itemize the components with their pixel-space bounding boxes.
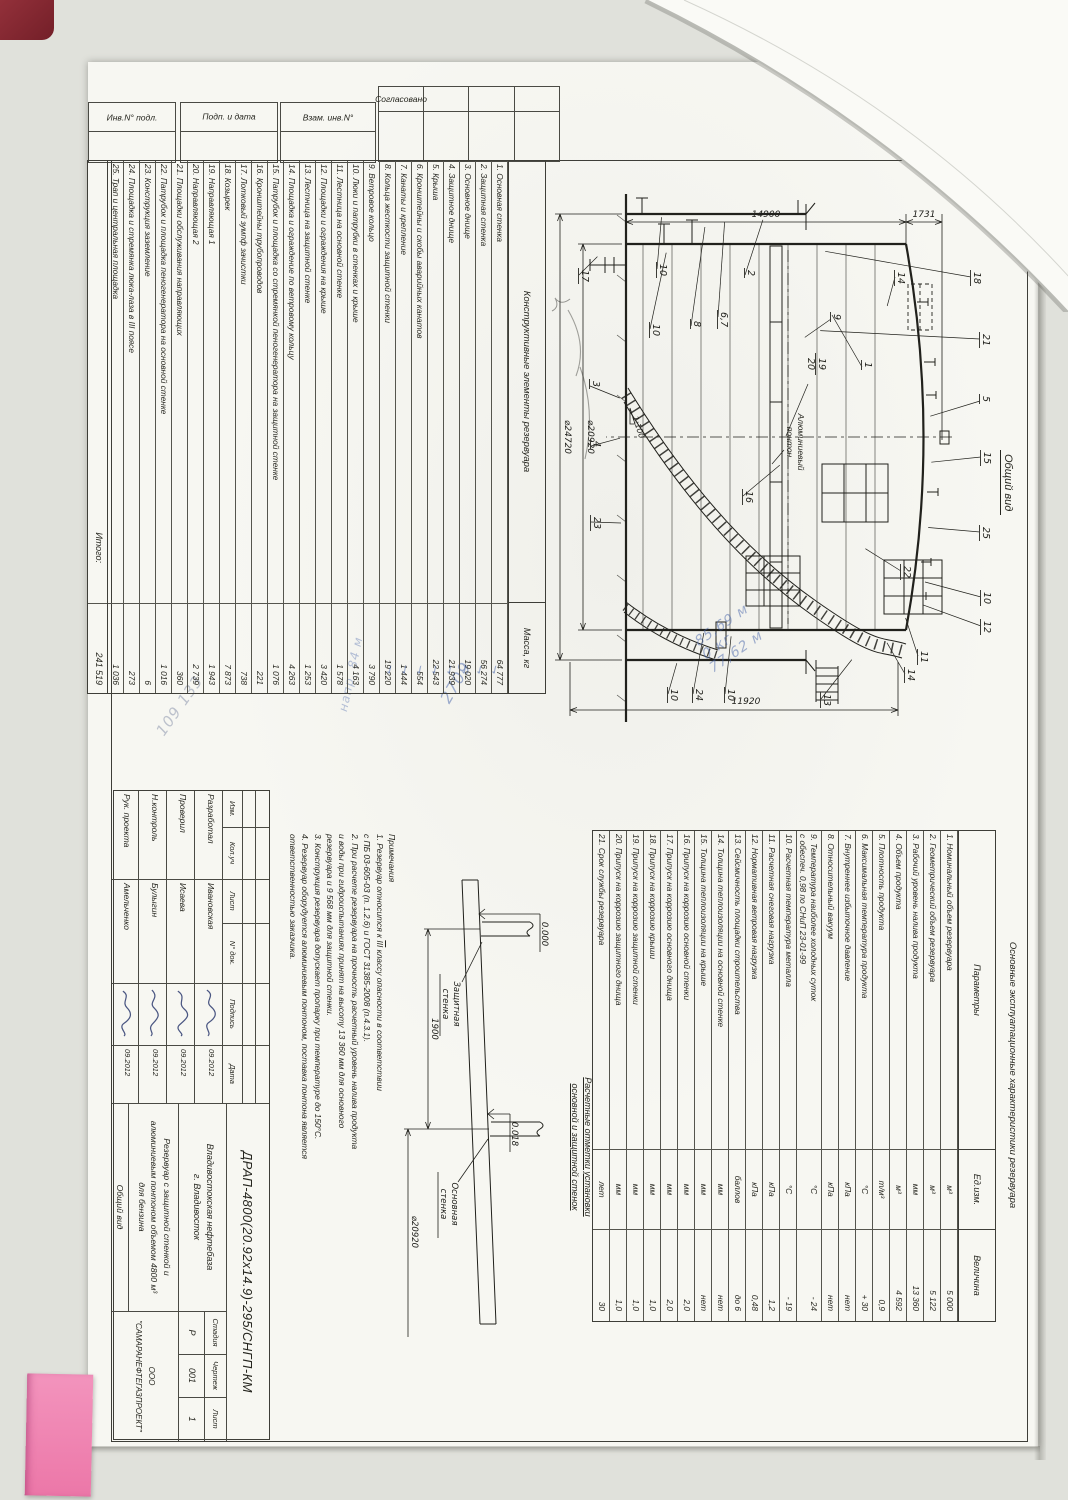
- parameter-value: + 30: [856, 1229, 872, 1321]
- table-row: 6. Максимальная температура продукта °С …: [856, 831, 873, 1321]
- parameter-unit: м³: [941, 1149, 957, 1229]
- staff-date: 09.2012: [123, 1049, 132, 1076]
- title-block: Изм. Кол.уч Лист N° док. Подпись Дата Ра…: [113, 790, 270, 1440]
- drawing-subject: Резервуар с защитной стенкой и алюминиев…: [129, 1103, 179, 1311]
- table-row: 6. Кронштейны и скобы аварийных канатов …: [412, 161, 428, 693]
- table-row: 23. Конструкция заземление 6: [140, 161, 156, 693]
- inv-label: Инв.N° подл.: [107, 112, 158, 122]
- parameter-value: 2,0: [678, 1229, 694, 1321]
- parameter-unit: мм: [610, 1149, 626, 1229]
- object-location: Владивостокская нефтебазаг. Владивосток: [179, 1103, 227, 1311]
- parameter-unit: мм: [712, 1149, 728, 1229]
- note-line: резервуара и 9 568 мм для защитной стенк…: [324, 834, 336, 1350]
- table-row: 13. Лестница на защитной стенке 1 253: [300, 161, 316, 693]
- table-row: 14. Толщина теплоизоляции на основной ст…: [712, 831, 729, 1321]
- element-mass: 56 274: [476, 603, 491, 693]
- parameter-name: 2. Геометрический объем резервуара: [924, 831, 940, 1149]
- drawing-no-value: 001: [179, 1354, 205, 1397]
- element-name: 16. Кронштейны трубопроводов: [252, 161, 267, 603]
- parameter-name: 1. Номинальный объем резервуара: [941, 831, 957, 1149]
- parameter-name: 4. Объем продукта: [890, 831, 906, 1149]
- col-podpis: Подпись: [223, 983, 243, 1045]
- notes-header: Примечания: [386, 834, 398, 1350]
- signature: [117, 987, 135, 1039]
- sketch-title: Расчетные отметки установки основной и з…: [568, 982, 594, 1312]
- col-ndok: N° док.: [223, 923, 243, 983]
- parameter-value: нет: [712, 1229, 728, 1321]
- element-mass: 64 777: [492, 603, 507, 693]
- parameter-name: 21. Срок службы резервуара: [593, 831, 609, 1149]
- design-company: ООО "САМАРАНЕФТЕГАЗПРОЕКТ": [112, 1311, 179, 1441]
- table-row: 16. Кронштейны трубопроводов 221: [252, 161, 268, 693]
- table-row: 17. Припуск на коррозию основного днища …: [661, 831, 678, 1321]
- note-line: 2. При расчете резервуара на прочность р…: [348, 834, 360, 1350]
- table-row: 15. Патрубок и площадка со стремянкой пе…: [268, 161, 284, 693]
- parameter-unit: °С: [856, 1149, 872, 1229]
- element-mass: 1 253: [300, 603, 315, 693]
- view-name-cell: Общий вид: [112, 1103, 129, 1311]
- element-mass: 273: [124, 603, 139, 693]
- element-mass: 1 943: [204, 603, 219, 693]
- inv-podl-strip: Инв.N° подл.: [88, 102, 176, 163]
- parameter-unit: мм: [678, 1149, 694, 1229]
- table-row: 12. Площадки и ограждения на крыше 3 420: [316, 161, 332, 693]
- parameter-value: нет: [839, 1229, 855, 1321]
- parameter-unit: кПа: [822, 1149, 838, 1229]
- staff-role: Разработал: [206, 794, 216, 844]
- table-row: 2. Защитная стенка 56 274: [476, 161, 492, 693]
- podp-label: Подп. и дата: [202, 112, 255, 122]
- total-label: Итого:: [88, 161, 107, 603]
- page-edge-shadow-bottom: [80, 1446, 1040, 1453]
- staff-role: Рук. проекта: [122, 794, 132, 847]
- staff-name: Ивановская: [206, 883, 216, 929]
- sheet-label: Лист: [205, 1397, 227, 1441]
- callout-25: 25: [979, 525, 991, 541]
- parameter-value: 30: [593, 1229, 609, 1321]
- callout-22: 22: [900, 564, 912, 580]
- callout-14: 14: [904, 667, 916, 683]
- callout-16: 16: [742, 489, 754, 505]
- table-row: 7. Внутреннее избыточное давление кПа не…: [839, 831, 856, 1321]
- staff-name: Амельченко: [122, 883, 132, 930]
- parameter-unit: м³: [890, 1149, 906, 1229]
- table-row: 14. Площадка и ограждение по ветровому к…: [284, 161, 300, 693]
- parameter-name: 13. Сейсмичность площадки строительства: [729, 831, 745, 1149]
- parameter-value: 0,48: [746, 1229, 762, 1321]
- parameter-name: 8. Относительный вакуум: [822, 831, 838, 1149]
- parameter-unit: лет: [593, 1149, 609, 1229]
- element-mass: 554: [412, 603, 427, 693]
- element-name: 4. Защитное днище: [444, 161, 459, 603]
- element-name: 24. Площадка и стремянка люка-лаза в III…: [124, 161, 139, 603]
- callout-24: 24: [692, 687, 704, 703]
- callout-20: 20: [805, 353, 815, 375]
- callout-5: 5: [979, 394, 991, 404]
- table-row: 5. Крыша 22 543: [428, 161, 444, 693]
- col-unit: Ед.изм.: [959, 1149, 995, 1229]
- table-row: 11. Расчетная снеговая нагрузка кПа 1,2: [763, 831, 780, 1321]
- element-name: 22. Патрубок и площадка пеногенератора н…: [156, 161, 171, 603]
- parameter-name: 7. Внутреннее избыточное давление: [839, 831, 855, 1149]
- table-row: 10. Расчетная температура металла °С - 1…: [780, 831, 797, 1321]
- element-name: 18. Козырек: [220, 161, 235, 603]
- callout-12: 12: [980, 619, 992, 635]
- table-row: 24. Площадка и стремянка люка-лаза в III…: [124, 161, 140, 693]
- parameter-name: 20. Припуск на коррозию защитного днища: [610, 831, 626, 1149]
- parameter-value: нет: [822, 1229, 838, 1321]
- table-row: 20. Направляющая 2 2 739: [188, 161, 204, 693]
- parameter-name: 16. Припуск на коррозию основной стенки: [678, 831, 694, 1149]
- characteristics-body: 1. Номинальный объем резервуара м³ 5 000…: [593, 831, 958, 1321]
- callout-8: 8: [690, 319, 702, 329]
- vzam-label: Взам. инв.N°: [303, 112, 354, 122]
- signature: [145, 987, 163, 1039]
- parameter-unit: мм: [661, 1149, 677, 1229]
- parameter-unit: м³: [924, 1149, 940, 1229]
- parameter-unit: мм: [627, 1149, 643, 1229]
- table-row: 2. Геометрический объем резервуара м³ 5 …: [924, 831, 941, 1321]
- element-name: 2. Защитная стенка: [476, 161, 491, 603]
- element-mass: 2 739: [188, 603, 203, 693]
- staff-name: Исаева: [178, 883, 188, 912]
- element-name: 15. Патрубок и площадка со стремянкой пе…: [268, 161, 283, 603]
- staff-role: Н.контроль: [150, 794, 160, 841]
- red-corner-mark: [0, 0, 54, 40]
- note-line: 4. Резервуар оборудуется алюминиевым пон…: [299, 834, 311, 1350]
- element-name: 1. Основная стенка: [492, 161, 507, 603]
- mass-column-header: Масса, кг: [509, 602, 545, 693]
- element-name: 3. Основное днище: [460, 161, 475, 603]
- callout-21: 21: [979, 332, 991, 348]
- element-name: 23. Конструкция заземление: [140, 161, 155, 603]
- table-row: 7. Канаты и крепление 1 444: [396, 161, 412, 693]
- table-row: 1. Номинальный объем резервуара м³ 5 000: [941, 831, 958, 1321]
- element-name: 10. Люки и патрубки в стенках и крыше: [348, 161, 363, 603]
- parameter-name: 11. Расчетная снеговая нагрузка: [763, 831, 779, 1149]
- parameter-value: 1,0: [610, 1229, 626, 1321]
- table-row: 15. Толщина теплоизоляции на крыше мм не…: [695, 831, 712, 1321]
- staff-date: 09.2012: [179, 1049, 188, 1076]
- element-name: 21. Площадки обслуживания направляющих: [172, 161, 187, 603]
- table-row: 17. Лотковый зумпф зачистки 738: [236, 161, 252, 693]
- parameter-unit: кПа: [746, 1149, 762, 1229]
- drawing-no-label: Чертеж: [205, 1354, 227, 1397]
- parameter-value: нет: [695, 1229, 711, 1321]
- total-row: Итого: 241 519: [88, 161, 108, 693]
- table-row: 9. Ветровое кольцо 3 790: [364, 161, 380, 693]
- table-row: 20. Припуск на коррозию защитного днища …: [610, 831, 627, 1321]
- element-mass: 1 016: [156, 603, 171, 693]
- parameter-name: 18. Припуск на коррозию крыши: [644, 831, 660, 1149]
- table-row: 3. Рабочий уровень налива продукта мм 13…: [907, 831, 924, 1321]
- table-row: 21. Срок службы резервуара лет 30: [593, 831, 610, 1321]
- callout-17: 17: [578, 268, 590, 284]
- table-row: 18. Козырек 7 873: [220, 161, 236, 693]
- parameter-value: 1,0: [627, 1229, 643, 1321]
- parameter-value: до 6: [729, 1229, 745, 1321]
- element-name: 13. Лестница на защитной стенке: [300, 161, 315, 603]
- element-name: 17. Лотковый зумпф зачистки: [236, 161, 251, 603]
- vzam-inv-strip: Взам. инв.N°: [280, 102, 376, 163]
- notes-block: Примечания 1. Резервуар относится к III …: [286, 834, 398, 1350]
- parameter-value: 5 122: [924, 1229, 940, 1321]
- parameter-name: 15. Толщина теплоизоляции на крыше: [695, 831, 711, 1149]
- callout-10: 10: [980, 590, 992, 606]
- callout-4: 4: [590, 439, 602, 449]
- pink-sticker: [25, 1373, 94, 1496]
- table-row: 22. Патрубок и площадка пеногенератора н…: [156, 161, 172, 693]
- col-value: Величина: [959, 1229, 995, 1321]
- construction-table-title: Конструктивные элементы резервуара: [509, 161, 545, 602]
- staff-name: Булыгин: [150, 883, 160, 917]
- element-name: 12. Площадки и ограждения на крыше: [316, 161, 331, 603]
- element-mass: 221: [252, 603, 267, 693]
- callout-13: 13: [820, 692, 832, 708]
- element-mass: 1 036: [108, 603, 123, 693]
- element-name: 20. Направляющая 2: [188, 161, 203, 603]
- element-name: 8. Кольца жесткости защитной стенки: [380, 161, 395, 603]
- table-row: 1. Основная стенка 64 777: [492, 161, 508, 693]
- col-data: Дата: [223, 1045, 243, 1103]
- table-row: 19. Направляющая 1 1 943: [204, 161, 220, 693]
- note-line: 1. Резервуар относится к III классу опас…: [373, 834, 385, 1350]
- parameter-value: 1,0: [644, 1229, 660, 1321]
- callout-10: 10: [649, 322, 661, 338]
- document-code: ДРАП-4800(20.92х14.9)-295/СНГП-КМ: [227, 1103, 269, 1441]
- callout-15: 15: [980, 450, 992, 466]
- callout-3: 3: [589, 379, 601, 389]
- element-name: 9. Ветровое кольцо: [364, 161, 379, 603]
- signature: [201, 987, 219, 1039]
- parameter-unit: мм: [907, 1149, 923, 1229]
- element-mass: 7 873: [220, 603, 235, 693]
- table-row: 8. Кольца жесткости защитной стенки 19 2…: [380, 161, 396, 693]
- callout-19: 19: [815, 353, 826, 375]
- parameter-unit: мм: [695, 1149, 711, 1229]
- note-line: и воды при гидроиспытаниях принят на выс…: [336, 834, 348, 1350]
- staff-date: 09.2012: [151, 1049, 160, 1076]
- col-list: Лист: [223, 879, 243, 923]
- parameter-value: 1,2: [763, 1229, 779, 1321]
- callout-6,7: 6,7: [717, 310, 729, 329]
- parameter-value: 5 000: [941, 1229, 957, 1321]
- table-row: 18. Припуск на коррозию крыши мм 1,0: [644, 831, 661, 1321]
- element-name: 6. Кронштейны и скобы аварийных канатов: [412, 161, 427, 603]
- staff-date: 09.2012: [207, 1049, 216, 1076]
- element-mass: 4 263: [284, 603, 299, 693]
- callout-11: 11: [917, 649, 929, 665]
- callout-1: 1: [861, 360, 873, 370]
- table-row: 5. Плотность продукта т/м³ 0,9: [873, 831, 890, 1321]
- element-mass: 3 790: [364, 603, 379, 693]
- table-row: 11. Лестница на основной стенке 1 578: [332, 161, 348, 693]
- callout-guides-19-20: 19 20: [805, 353, 826, 375]
- callout-18: 18: [970, 270, 982, 286]
- element-mass: 19 020: [460, 603, 475, 693]
- parameter-name: 17. Припуск на коррозию основного днища: [661, 831, 677, 1149]
- table-row: 4. Защитное днище 21 939: [444, 161, 460, 693]
- characteristics-table: Параметры Ед.изм. Величина 1. Номинальны…: [592, 830, 996, 1322]
- parameter-value: 4 592: [890, 1229, 906, 1321]
- element-name: 19. Направляющая 1: [204, 161, 219, 603]
- element-mass: 1 578: [332, 603, 347, 693]
- col-kol: Кол.уч: [223, 827, 243, 879]
- signature: [173, 987, 191, 1039]
- element-name: 25. Трап и центральная площадка: [108, 161, 123, 603]
- element-mass: 1 076: [268, 603, 283, 693]
- sheet-no-value: 1: [179, 1397, 205, 1441]
- soglasovano-label: Согласовано: [375, 94, 427, 104]
- element-mass: 6: [140, 603, 155, 693]
- element-mass: 3 420: [316, 603, 331, 693]
- element-mass: 22 543: [428, 603, 443, 693]
- note-line: ответственностью заказчика.: [286, 834, 298, 1350]
- drawing-view-title: Общий вид: [1000, 450, 1014, 515]
- element-name: 5. Крыша: [428, 161, 443, 603]
- characteristics-table-title: Основные эксплуатационные характеристики…: [1007, 830, 1018, 1320]
- table-row: 12. Нормативная ветровая нагрузка кПа 0,…: [746, 831, 763, 1321]
- table-row: 10. Люки и патрубки в стенках и крыше 4 …: [348, 161, 364, 693]
- pontoon-label: Алюминиевый понтон: [784, 384, 806, 500]
- element-mass: 738: [236, 603, 251, 693]
- table-row: 25. Трап и центральная площадка 1 036: [108, 161, 124, 693]
- element-name: 14. Площадка и ограждение по ветровому к…: [284, 161, 299, 603]
- element-name: 11. Лестница на основной стенке: [332, 161, 347, 603]
- table-row: 3. Основное днище 19 020: [460, 161, 476, 693]
- scanned-drawing-page: Согласовано Взам. инв.N° Подп. и дата Ин…: [0, 0, 1068, 1500]
- table-row: 19. Припуск на коррозию защитной стенки …: [627, 831, 644, 1321]
- element-mass: 1 444: [396, 603, 411, 693]
- callout-10: 10: [667, 687, 679, 703]
- parameter-value: 0,9: [873, 1229, 889, 1321]
- callout-9: 9: [830, 312, 842, 322]
- parameter-name: 10. Расчетная температура металла: [780, 831, 796, 1149]
- parameter-name: 9. Температура наиболее холодных сутокс …: [797, 831, 821, 1149]
- table-row: 21. Площадки обслуживания направляющих 3…: [172, 161, 188, 693]
- page-edge-shadow-right: [1034, 190, 1046, 1460]
- parameter-value: - 24: [797, 1229, 821, 1321]
- podp-data-strip: Подп. и дата: [180, 102, 278, 163]
- parameter-name: 12. Нормативная ветровая нагрузка: [746, 831, 762, 1149]
- element-mass: 21 939: [444, 603, 459, 693]
- characteristics-header: Параметры Ед.изм. Величина: [958, 831, 995, 1321]
- construction-table-body: 1. Основная стенка 64 777 2. Защитная ст…: [108, 161, 509, 693]
- total-mass: 241 519: [88, 603, 107, 693]
- parameter-value: - 19: [780, 1229, 796, 1321]
- parameter-unit: баллов: [729, 1149, 745, 1229]
- callout-2: 2: [744, 268, 756, 278]
- parameter-value: 13 360: [907, 1229, 923, 1321]
- table-row: 16. Припуск на коррозию основной стенки …: [678, 831, 695, 1321]
- table-row: 9. Температура наиболее холодных сутокс …: [797, 831, 822, 1321]
- parameter-unit: мм: [644, 1149, 660, 1229]
- parameter-name: 3. Рабочий уровень налива продукта: [907, 831, 923, 1149]
- staff-role: Проверил: [178, 794, 188, 833]
- parameter-unit: т/м³: [873, 1149, 889, 1229]
- parameter-name: 5. Плотность продукта: [873, 831, 889, 1149]
- note-line: 3. Конструкция резервуара допускает проп…: [311, 834, 323, 1350]
- stage-value: Р: [179, 1311, 205, 1354]
- construction-elements-table: Конструктивные элементы резервуара Масса…: [87, 160, 546, 694]
- table-row: 8. Относительный вакуум кПа нет: [822, 831, 839, 1321]
- callout-10: 10: [656, 262, 668, 278]
- col-izm: Изм.: [223, 791, 243, 827]
- parameter-name: 14. Толщина теплоизоляции на основной ст…: [712, 831, 728, 1149]
- parameter-name: 19. Припуск на коррозию защитной стенки: [627, 831, 643, 1149]
- note-line: с ПБ 03-605-03 (п. 1.2.6) и ГОСТ 31385-2…: [361, 834, 373, 1350]
- element-name: 7. Канаты и крепление: [396, 161, 411, 603]
- parameter-unit: °С: [780, 1149, 796, 1229]
- callout-10: 10: [724, 687, 736, 703]
- parameter-name: 6. Максимальная температура продукта: [856, 831, 872, 1149]
- parameter-unit: кПа: [763, 1149, 779, 1229]
- table-row: 13. Сейсмичность площадки строительства …: [729, 831, 746, 1321]
- parameter-value: 2,0: [661, 1229, 677, 1321]
- parameter-unit: кПа: [839, 1149, 855, 1229]
- callout-14: 14: [894, 270, 906, 286]
- element-mass: 4 163: [348, 603, 363, 693]
- approval-stamp-grid: Согласовано: [378, 86, 560, 162]
- drawing-sheet: Согласовано Взам. инв.N° Подп. и дата Ин…: [88, 62, 1038, 1447]
- element-mass: 360: [172, 603, 187, 693]
- element-mass: 19 220: [380, 603, 395, 693]
- parameter-unit: °С: [797, 1149, 821, 1229]
- callout-23: 23: [590, 515, 602, 531]
- table-row: 4. Объем продукта м³ 4 592: [890, 831, 907, 1321]
- col-parameters: Параметры: [959, 831, 995, 1149]
- stage-label: Стадия: [205, 1311, 227, 1354]
